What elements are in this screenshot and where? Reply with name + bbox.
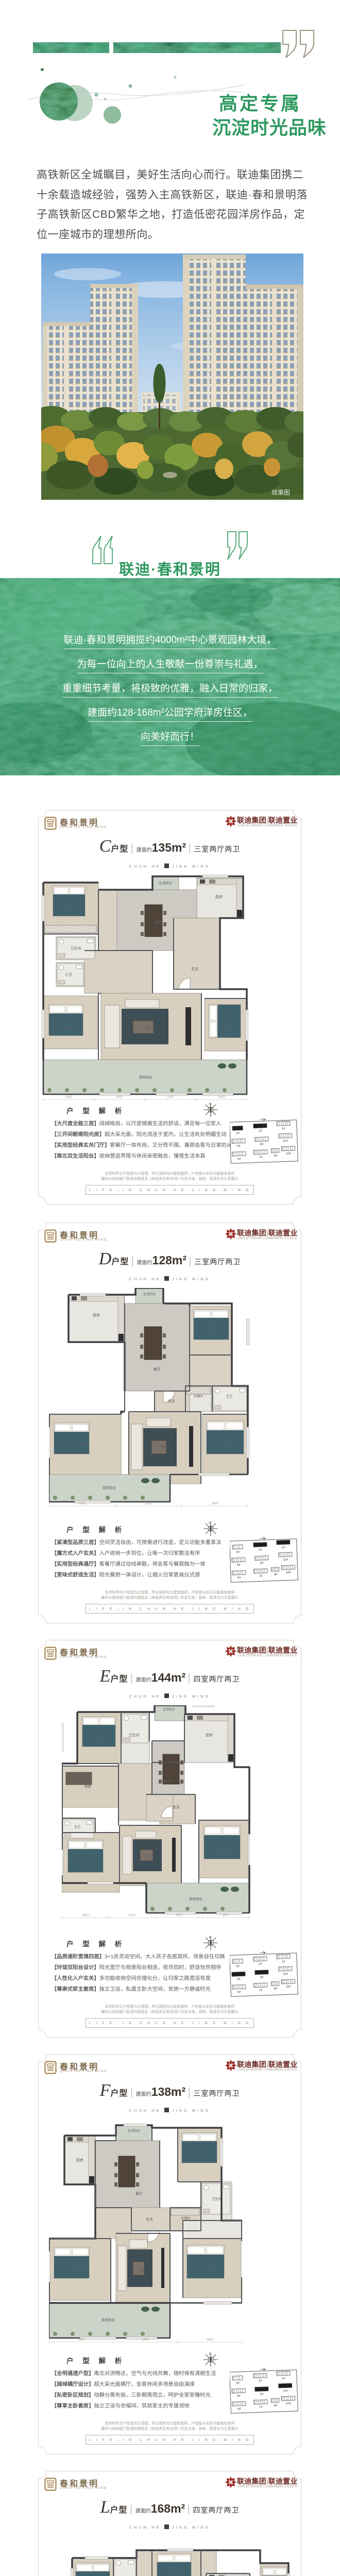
svg-text:卫生间: 卫生间 — [129, 1733, 140, 1737]
svg-text:7#: 7# — [259, 1575, 263, 1578]
svg-text:3#: 3# — [236, 1551, 240, 1554]
svg-text:N: N — [209, 2353, 211, 2356]
svg-text:1#: 1# — [282, 1960, 286, 1963]
svg-text:4500: 4500 — [116, 1096, 123, 1099]
svg-text:景观阳台: 景观阳台 — [101, 2317, 115, 2322]
svg-text:卧室: 卧室 — [196, 2150, 203, 2155]
svg-text:景观阳台: 景观阳台 — [139, 1075, 152, 1079]
svg-text:餐厅: 餐厅 — [154, 1367, 161, 1371]
svg-text:6#: 6# — [237, 2408, 242, 2411]
svg-text:11#: 11# — [283, 2389, 288, 2393]
svg-text:客厅: 客厅 — [139, 2268, 146, 2273]
svg-text:3600: 3600 — [218, 1096, 225, 1099]
svg-text:7#: 7# — [259, 1989, 263, 1992]
svg-text:厨房: 厨房 — [215, 894, 223, 899]
svg-text:生活阳台: 生活阳台 — [163, 1707, 175, 1711]
svg-text:1#: 1# — [282, 1127, 286, 1130]
svg-text:生活阳台: 生活阳台 — [159, 880, 172, 885]
svg-text:客厅: 客厅 — [146, 1854, 153, 1858]
svg-text:效果图: 效果图 — [271, 488, 290, 496]
svg-text:衣帽间: 衣帽间 — [194, 1394, 203, 1398]
svg-text:8#: 8# — [260, 1143, 264, 1146]
svg-text:3#: 3# — [236, 1132, 240, 1135]
svg-text:主卧: 主卧 — [84, 1861, 91, 1866]
svg-text:2#: 2# — [259, 1130, 263, 1133]
svg-text:3600: 3600 — [176, 1914, 183, 1917]
svg-text:N: N — [209, 1936, 211, 1939]
svg-text:卫生间: 卫生间 — [71, 946, 81, 951]
svg-text:书房: 书房 — [84, 1784, 91, 1789]
svg-text:5#: 5# — [237, 1145, 241, 1148]
svg-text:10#: 10# — [286, 1153, 292, 1156]
svg-text:玄关: 玄关 — [191, 967, 198, 971]
svg-text:5#: 5# — [237, 1978, 241, 1981]
svg-text:厨房: 厨房 — [93, 1313, 100, 1317]
svg-text:4200: 4200 — [128, 1914, 135, 1917]
svg-text:5#: 5# — [237, 1564, 241, 1567]
svg-text:餐厅: 餐厅 — [135, 2191, 143, 2196]
svg-text:卧室: 卧室 — [81, 1442, 89, 1446]
svg-text:厨房: 厨房 — [206, 1733, 213, 1737]
svg-text:8#: 8# — [260, 1976, 264, 1979]
svg-text:卧室: 卧室 — [75, 2266, 82, 2270]
svg-text:玄关: 玄关 — [168, 1399, 175, 1403]
svg-text:主卫: 主卫 — [74, 1825, 80, 1829]
svg-text:11#: 11# — [283, 1973, 288, 1976]
svg-text:卧室: 卧室 — [65, 1026, 72, 1030]
svg-text:11#: 11# — [283, 1140, 288, 1143]
svg-text:9#: 9# — [274, 2404, 278, 2408]
svg-text:客厅: 客厅 — [146, 1026, 154, 1030]
svg-text:生活阳台: 生活阳台 — [128, 2129, 140, 2133]
svg-text:景观阳台: 景观阳台 — [189, 1896, 202, 1901]
svg-text:10#: 10# — [286, 1986, 292, 1989]
svg-text:6#: 6# — [237, 1991, 242, 1994]
svg-text:2#: 2# — [259, 1963, 263, 1966]
svg-text:卧室: 卧室 — [66, 906, 73, 911]
svg-text:9#: 9# — [274, 1573, 278, 1577]
svg-text:7#: 7# — [259, 2406, 263, 2409]
svg-text:7#: 7# — [259, 1156, 263, 1159]
svg-text:玄关: 玄关 — [173, 1805, 180, 1809]
svg-text:玄关: 玄关 — [146, 2217, 153, 2222]
svg-text:9#: 9# — [274, 1155, 278, 1158]
svg-text:11#: 11# — [283, 1558, 288, 1562]
svg-text:3#: 3# — [236, 1965, 240, 1968]
svg-text:10#: 10# — [286, 2402, 292, 2405]
svg-text:卧室: 卧室 — [172, 2570, 179, 2574]
svg-text:5#: 5# — [237, 2395, 241, 2398]
svg-text:生活阳台: 生活阳台 — [143, 1292, 156, 1296]
svg-text:3600: 3600 — [65, 1096, 72, 1099]
svg-text:卧室: 卧室 — [94, 1738, 101, 1742]
svg-text:餐厅: 餐厅 — [155, 920, 162, 925]
svg-text:2#: 2# — [259, 1549, 263, 1552]
svg-text:6#: 6# — [237, 1158, 242, 1161]
svg-text:8#: 8# — [260, 1562, 264, 1565]
svg-text:2#: 2# — [259, 2380, 263, 2383]
svg-text:厨房: 厨房 — [76, 2158, 83, 2162]
svg-text:卧室: 卧室 — [220, 1849, 228, 1853]
svg-text:餐厅: 餐厅 — [164, 1779, 171, 1784]
svg-text:3600: 3600 — [82, 1914, 89, 1917]
svg-text:卧室: 卧室 — [207, 1326, 214, 1330]
svg-text:主卫: 主卫 — [226, 1394, 232, 1398]
svg-text:N: N — [209, 1522, 211, 1525]
svg-text:主卧: 主卧 — [209, 2266, 216, 2270]
svg-text:3#: 3# — [236, 2382, 240, 2385]
svg-text:3600: 3600 — [206, 2338, 213, 2342]
svg-text:3300: 3300 — [78, 1502, 86, 1505]
svg-text:衣帽间: 衣帽间 — [181, 2216, 190, 2221]
svg-text:景观阳台: 景观阳台 — [103, 1485, 116, 1490]
svg-text:10#: 10# — [286, 1571, 292, 1574]
svg-text:3900: 3900 — [145, 1502, 152, 1505]
svg-text:主卧: 主卧 — [222, 1442, 229, 1446]
svg-text:6#: 6# — [237, 1577, 242, 1580]
svg-text:3600: 3600 — [211, 1502, 218, 1505]
svg-text:客厅: 客厅 — [161, 1444, 168, 1449]
svg-text:卧室: 卧室 — [222, 1026, 229, 1030]
svg-text:8#: 8# — [260, 2393, 264, 2396]
svg-text:1#: 1# — [282, 1546, 286, 1549]
svg-text:N: N — [209, 1103, 211, 1106]
svg-text:3900: 3900 — [142, 2338, 149, 2342]
svg-text:3900: 3900 — [222, 1914, 229, 1917]
svg-text:1#: 1# — [282, 2377, 286, 2380]
svg-text:3300: 3300 — [167, 1096, 174, 1099]
svg-text:小卫: 小卫 — [65, 972, 72, 977]
svg-text:9#: 9# — [274, 1988, 278, 1991]
svg-text:卫生间: 卫生间 — [212, 2197, 221, 2201]
svg-text:3300: 3300 — [77, 2338, 84, 2342]
